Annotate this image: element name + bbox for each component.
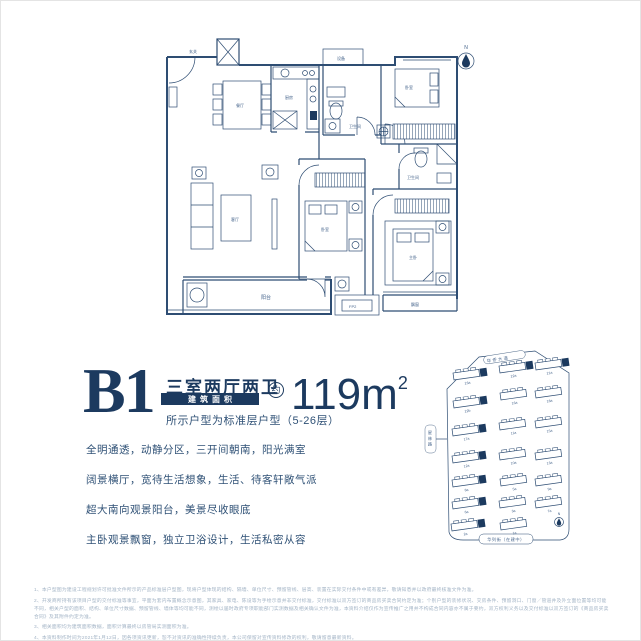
brochure-page: 阳台 飘窗 FP2	[0, 0, 641, 641]
svg-text:18a: 18a	[546, 399, 552, 404]
svg-text:22a: 22a	[510, 374, 516, 379]
approx-badge: 约	[268, 382, 284, 398]
plan-code: B1	[83, 359, 154, 423]
master-label: 主卧	[409, 254, 417, 260]
dining-room: 餐厅	[213, 81, 271, 129]
equipment-label: 设备	[337, 55, 345, 61]
site-building: 11a	[499, 417, 527, 437]
road-bottom: 华列街（在建中）	[479, 534, 533, 544]
bay-window-label: 飘窗	[411, 301, 419, 307]
entry-label: 玄关	[189, 48, 197, 54]
site-building: 22b	[453, 394, 489, 415]
ac-unit-label: FP2	[349, 304, 357, 309]
site-building: 18a	[535, 385, 563, 405]
svg-text:9a: 9a	[547, 487, 551, 492]
svg-text:1a: 1a	[512, 531, 516, 536]
footnote-line: 3、相关面积均为建筑面积数据，面积计算最终以房管局实测面积为准。	[34, 624, 609, 632]
site-building: 22a	[499, 359, 535, 380]
footnote-line: 2、开发商所持有该项目户型的交付标准等事宜，平面为套内布置概念示意图，其家具、家…	[34, 598, 609, 622]
disclaimer-footnotes: 1、本户型图为建设工程规划许可批准文件所示的产品标准层户型图，现将户型体现的结构…	[34, 587, 609, 641]
svg-text:7a: 7a	[547, 509, 551, 514]
kitchen-label: 厨房	[285, 94, 293, 100]
bay-window: 飘窗	[383, 292, 457, 311]
feature-line: 全明通透，动静分区，三开间朝南，阳光满室	[86, 444, 317, 474]
feature-line: 主卧观景飘窗，独立卫浴设计，生活私密从容	[86, 534, 317, 564]
floor-note: 所示户型为标准层户型（5-26层）	[166, 412, 340, 428]
site-north-label: N	[558, 512, 561, 516]
svg-text:22b: 22b	[464, 409, 470, 414]
site-building: 12a	[452, 449, 488, 470]
svg-text:6a: 6a	[464, 510, 468, 515]
balcony: 阳台	[167, 277, 331, 314]
svg-text:8a: 8a	[464, 488, 468, 493]
info-block: B1 三室两厅两卫 建筑面积 约 119m2 所示户型为标准层户型（5-26层）	[83, 353, 413, 433]
site-building: 9a	[535, 473, 563, 493]
bathroom2-label: 卫生间	[407, 174, 419, 180]
site-north-needle-icon	[557, 518, 561, 525]
svg-text:11a: 11a	[510, 431, 516, 436]
site-building: 13a	[535, 447, 563, 467]
north-label: N	[464, 45, 468, 51]
road-left-label: 星林路	[427, 430, 433, 447]
svg-text:10a: 10a	[510, 461, 516, 466]
svg-text:17a: 17a	[463, 437, 469, 442]
site-building: 17a	[452, 422, 488, 443]
feature-line: 超大南向观景阳台，美景尽收眼底	[86, 504, 317, 534]
north-needle-icon	[462, 54, 470, 68]
svg-text:21a: 21a	[546, 371, 552, 376]
door-arcs	[167, 57, 415, 215]
dining-label: 餐厅	[236, 102, 244, 108]
site-building: 15a	[535, 415, 563, 435]
area-superscript: 2	[398, 373, 408, 393]
svg-text:13a: 13a	[546, 461, 552, 466]
road-left: 星林路	[425, 425, 447, 453]
site-building: 21a	[535, 356, 571, 377]
svg-text:15a: 15a	[546, 429, 552, 434]
svg-text:3a: 3a	[511, 509, 515, 514]
floor-plan: 阳台 飘窗 FP2	[159, 27, 481, 323]
site-building: 23a	[453, 366, 489, 387]
area-value: 119m2	[291, 361, 408, 417]
svg-text:12a: 12a	[463, 464, 469, 469]
living-label: 客厅	[231, 216, 239, 222]
site-building: 10a	[499, 447, 527, 467]
site-building: 3a	[499, 495, 527, 515]
bedroom1-label: 卧室	[405, 84, 413, 90]
svg-text:2a: 2a	[463, 532, 467, 537]
svg-text:5a: 5a	[512, 487, 516, 492]
site-building: 6a	[452, 495, 488, 516]
kitchen: 厨房	[273, 67, 319, 129]
feature-line: 阔景横厅，宽待生活想象，生活、待客轩敞气派	[86, 474, 317, 504]
bathroom-2: 卫生间	[407, 144, 457, 183]
north-arrow: N	[458, 45, 474, 69]
site-building: 8a	[452, 473, 488, 494]
master-bedroom: 主卧	[385, 199, 451, 285]
svg-text:23a: 23a	[464, 381, 470, 386]
feature-list: 全明通透，动静分区，三开间朝南，阳光满室 阔景横厅，宽待生活想象，生活、待客轩敞…	[86, 444, 317, 564]
bedroom-1: 卧室	[377, 69, 455, 139]
site-building: 16a	[500, 387, 528, 407]
balcony-label: 阳台	[261, 294, 271, 301]
bathroom-1: 卫生间	[325, 87, 361, 133]
site-north-arrow: N	[555, 512, 564, 527]
bedroom-2: 卧室	[305, 173, 365, 251]
site-building: 5a	[500, 473, 528, 493]
bedroom2-label: 卧室	[321, 226, 329, 232]
footnote-line: 1、本户型图为建设工程规划许可批准文件所示的产品标准层户型图，现将户型体现的结构…	[34, 587, 609, 595]
living-room: 客厅	[191, 165, 278, 249]
site-map: 华侨大道 星林路 华列街（在建中） 23a 22b 17a 12a 8a 6a …	[423, 349, 581, 561]
area-label-bar: 建筑面积	[161, 393, 259, 405]
road-bottom-label: 华列街（在建中）	[487, 536, 525, 543]
footnote-line: 4、本资料制作时间为2021年1月12日，因各项资讯更新，恕不对资讯的准确性持续…	[34, 635, 609, 641]
svg-text:16a: 16a	[511, 401, 517, 406]
bathroom1-label: 卫生间	[349, 123, 361, 129]
